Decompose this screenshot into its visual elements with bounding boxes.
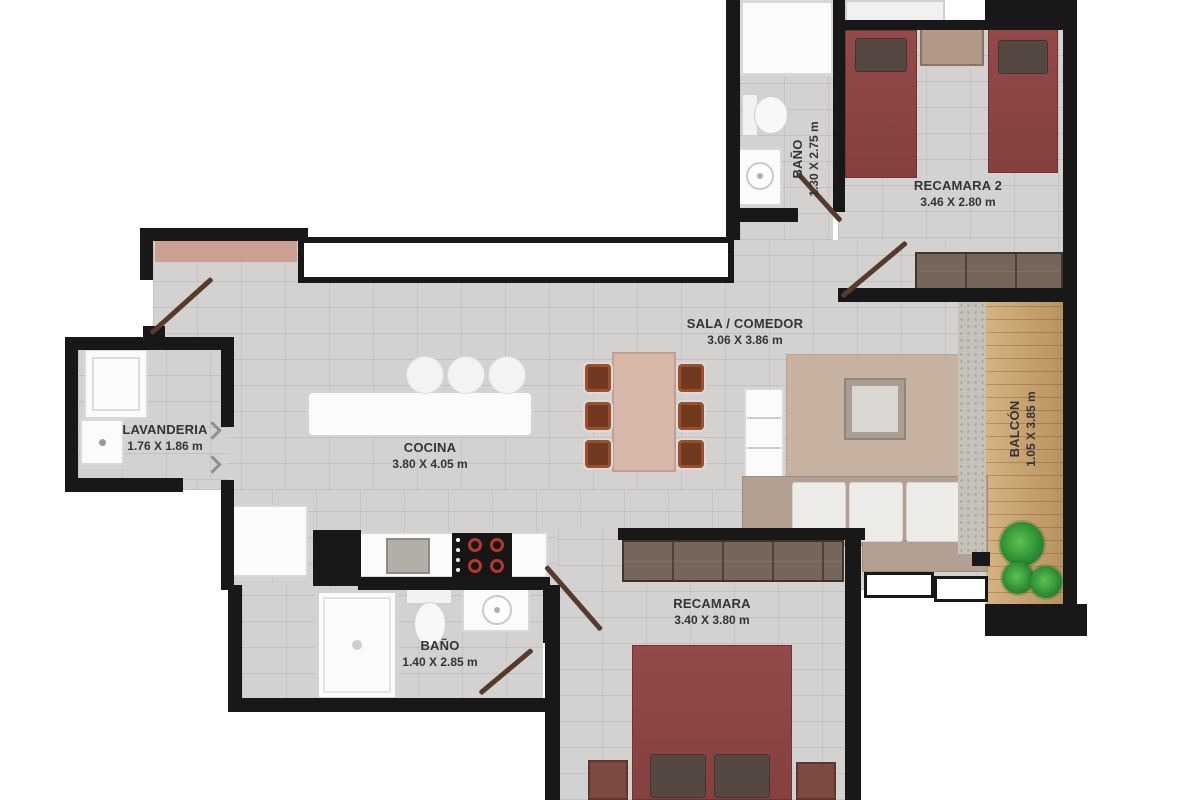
toilet1-bowl [414,602,446,646]
balcony-plant [1030,566,1062,598]
bedroom1-nightstand [796,762,836,800]
balcony-plant [1002,562,1034,594]
wall [221,337,234,427]
wall [358,577,550,590]
wall [838,288,1077,302]
cooktop-knob [456,538,460,542]
wall [221,480,234,590]
bathroom2-sink-drain [757,173,763,179]
toilet2-bowl [754,96,788,134]
tv-unit [744,388,784,478]
dining-chair [676,438,706,470]
bedroom1-pillow [650,754,706,798]
dining-table [612,352,676,472]
kitchen-window [298,237,734,283]
wall [618,528,865,540]
kitchen-island [307,391,533,437]
balcony-sliding-door-panel [864,572,934,598]
dining-chair [676,362,706,394]
bedroom2-nightstand [920,28,984,66]
floor-plan: BAÑO 1.30 X 2.75 m RECAMARA 2 3.46 X 2.8… [0,0,1201,800]
cooktop-burner [490,538,504,552]
wall [140,228,153,280]
wall [972,552,990,566]
balcony-sliding-door-panel [934,576,988,602]
wall [985,0,1065,30]
bedroom2-wardrobe [845,0,945,22]
bathroom1-sink-drain [494,607,500,613]
tv-unit-shelf [747,417,781,419]
entry-mat [155,241,297,262]
kitchen-stool [406,356,444,394]
bedroom2-closet [915,252,1063,290]
cooktop-knob [456,558,460,562]
dining-chair [583,362,613,394]
bedroom1-closet [622,540,844,582]
cooktop-knob [456,548,460,552]
wall [65,337,78,492]
wall [545,585,560,800]
washing-machine-lid [92,357,140,411]
wall [140,228,308,241]
tv-unit-shelf [747,447,781,449]
shower1-drain [352,640,362,650]
dining-chair [583,400,613,432]
wall [726,208,798,222]
cooktop [452,533,512,580]
kitchen-stool [488,356,526,394]
bedroom1-nightstand [588,760,628,800]
cooktop-burner [468,559,482,573]
stone-feature-wall [958,302,986,554]
wall [1063,0,1077,610]
wall [313,530,361,586]
cooktop-burner [490,559,504,573]
shower2 [740,0,834,76]
kitchen-stool [447,356,485,394]
kitchen-sink [386,538,430,574]
balcony-plant [1000,522,1044,566]
dining-chair [676,400,706,432]
coffee-table-top [852,386,898,432]
wall [65,337,232,350]
refrigerator [232,505,308,577]
wall [65,478,183,492]
laundry-sink-drain [99,439,106,446]
dining-chair [583,438,613,470]
bedroom2-pillow-left [855,38,907,72]
wall [833,0,845,212]
wall [228,585,242,712]
cooktop-knob [456,568,460,572]
wall [985,604,1087,636]
cooktop-burner [468,538,482,552]
sofa-cushion [906,482,960,542]
wall [726,0,740,240]
wall [228,698,548,712]
wall [838,20,988,30]
bedroom1-pillow [714,754,770,798]
wall [845,528,861,800]
bedroom2-pillow-right [998,40,1048,74]
